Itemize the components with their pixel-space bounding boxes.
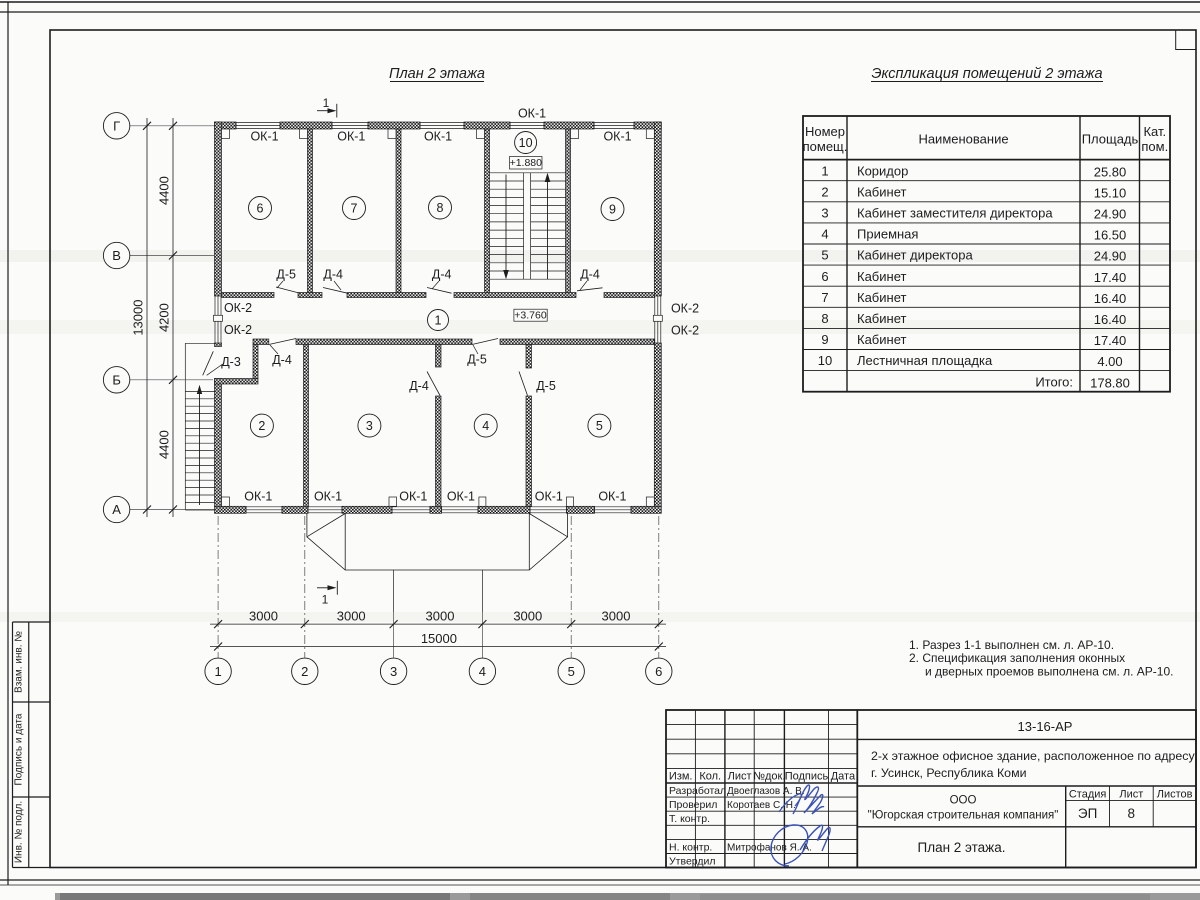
svg-text:15.10: 15.10: [1094, 185, 1127, 200]
svg-text:Разработал: Разработал: [669, 785, 726, 797]
svg-text:Коридор: Коридор: [857, 163, 908, 178]
svg-text:1: 1: [214, 664, 221, 679]
svg-text:Взам. инв. №: Взам. инв. №: [14, 631, 25, 693]
svg-text:1. Разрез 1-1 выполнен см. л.: 1. Разрез 1-1 выполнен см. л. АР-10.: [909, 638, 1114, 652]
svg-text:24.90: 24.90: [1094, 249, 1127, 264]
svg-text:13000: 13000: [131, 300, 146, 336]
svg-text:Д-4: Д-4: [323, 268, 343, 282]
svg-text:17.40: 17.40: [1094, 333, 1127, 348]
svg-text:ОК-1: ОК-1: [244, 490, 272, 504]
svg-text:16.50: 16.50: [1094, 228, 1127, 243]
svg-text:9: 9: [609, 203, 616, 217]
svg-text:ОК-1: ОК-1: [518, 107, 546, 121]
svg-text:7: 7: [351, 202, 358, 216]
svg-text:5: 5: [568, 664, 575, 679]
svg-text:6: 6: [257, 202, 264, 216]
svg-text:Д-4: Д-4: [432, 268, 452, 282]
svg-text:ОК-1: ОК-1: [535, 490, 563, 504]
svg-text:Г: Г: [113, 119, 120, 134]
svg-text:Лист: Лист: [1119, 789, 1143, 801]
svg-text:4: 4: [479, 664, 486, 679]
svg-text:8: 8: [437, 201, 444, 215]
svg-text:+1.880: +1.880: [510, 157, 543, 169]
svg-text:3000: 3000: [602, 609, 631, 624]
svg-text:3: 3: [390, 664, 397, 679]
svg-text:Кабинет: Кабинет: [857, 332, 906, 347]
svg-text:3: 3: [366, 419, 373, 433]
svg-text:6: 6: [821, 269, 828, 284]
svg-text:Кат.: Кат.: [1143, 124, 1166, 139]
svg-text:Лист: Лист: [728, 771, 752, 783]
svg-text:Кабинет: Кабинет: [857, 290, 906, 305]
svg-text:ОК-1: ОК-1: [314, 490, 342, 504]
svg-text:+3.760: +3.760: [514, 309, 547, 321]
svg-text:16.40: 16.40: [1094, 312, 1127, 327]
svg-text:В: В: [112, 248, 121, 263]
svg-text:3000: 3000: [337, 609, 366, 624]
svg-text:Инв. № подл.: Инв. № подл.: [14, 801, 25, 863]
svg-text:8: 8: [821, 311, 828, 326]
svg-text:3: 3: [821, 206, 828, 221]
svg-text:3000: 3000: [249, 609, 278, 624]
svg-text:Д-5: Д-5: [536, 379, 556, 393]
svg-text:2: 2: [258, 419, 265, 433]
svg-text:Подпись и дата: Подпись и дата: [14, 713, 25, 785]
svg-text:ООО: ООО: [950, 795, 977, 807]
svg-text:15000: 15000: [421, 631, 457, 646]
svg-text:5: 5: [821, 248, 828, 263]
svg-text:2: 2: [301, 664, 308, 679]
svg-text:4200: 4200: [157, 303, 172, 332]
svg-text:ОК-1: ОК-1: [447, 490, 475, 504]
svg-text:Кабинет: Кабинет: [857, 184, 906, 199]
svg-text:ОК-1: ОК-1: [250, 130, 278, 144]
svg-text:г. Усинск, Республика Коми: г. Усинск, Республика Коми: [871, 766, 1027, 780]
svg-text:3000: 3000: [513, 609, 542, 624]
svg-text:Проверил: Проверил: [669, 799, 717, 811]
svg-text:7: 7: [821, 290, 828, 305]
svg-text:8: 8: [1128, 806, 1136, 821]
svg-text:4: 4: [821, 227, 828, 242]
svg-text:Лестничная площадка: Лестничная площадка: [857, 353, 993, 368]
svg-text:ОК-1: ОК-1: [337, 130, 365, 144]
svg-text:10: 10: [818, 353, 832, 368]
svg-text:пом.: пом.: [1141, 139, 1168, 154]
svg-text:24.90: 24.90: [1094, 207, 1127, 222]
svg-text:Д-4: Д-4: [580, 268, 600, 282]
svg-text:178.80: 178.80: [1090, 375, 1130, 390]
svg-text:1: 1: [322, 593, 329, 607]
svg-text:ОК-1: ОК-1: [598, 490, 626, 504]
svg-text:13-16-АР: 13-16-АР: [1018, 719, 1073, 734]
svg-text:17.40: 17.40: [1094, 270, 1127, 285]
svg-text:Кол.: Кол.: [699, 771, 721, 783]
svg-text:Т. контр.: Т. контр.: [669, 813, 710, 825]
svg-text:ЭП: ЭП: [1078, 806, 1097, 821]
svg-text:25.80: 25.80: [1094, 164, 1127, 179]
svg-text:А: А: [112, 502, 121, 517]
svg-text:Приемная: Приемная: [857, 227, 918, 242]
svg-text:Н. контр.: Н. контр.: [669, 842, 712, 854]
svg-text:Кабинет: Кабинет: [857, 269, 906, 284]
svg-text:2. Спецификация заполнения око: 2. Спецификация заполнения оконных: [909, 651, 1125, 665]
svg-text:ОК-2: ОК-2: [671, 302, 699, 316]
svg-text:Дата: Дата: [831, 771, 856, 783]
svg-text:2-х этажное офисное здание, ра: 2-х этажное офисное здание, расположенно…: [871, 749, 1198, 763]
svg-text:Номер: Номер: [805, 124, 845, 139]
svg-text:2: 2: [821, 184, 828, 199]
svg-text:План 2 этажа: План 2 этажа: [389, 66, 485, 82]
svg-text:ОК-1: ОК-1: [603, 130, 631, 144]
svg-text:Изм.: Изм.: [669, 771, 693, 783]
svg-text:Экспликация помещений 2 этажа: Экспликация помещений 2 этажа: [871, 66, 1102, 82]
svg-text:Подпись: Подпись: [785, 771, 829, 783]
svg-text:помещ.: помещ.: [803, 139, 848, 154]
svg-text:4: 4: [482, 419, 489, 433]
svg-text:ОК-1: ОК-1: [424, 130, 452, 144]
svg-text:Утвердил: Утвердил: [669, 856, 716, 868]
svg-text:ОК-1: ОК-1: [399, 490, 427, 504]
svg-text:Двоеглазов А. В.: Двоеглазов А. В.: [727, 786, 805, 797]
svg-text:Стадия: Стадия: [1069, 789, 1107, 801]
svg-text:"Югорская строительная компани: "Югорская строительная компания": [868, 810, 1059, 822]
svg-text:Д-5: Д-5: [467, 353, 487, 367]
svg-text:Площадь: Площадь: [1082, 132, 1139, 147]
svg-text:3000: 3000: [426, 609, 455, 624]
svg-text:№док.: №док.: [753, 771, 785, 783]
svg-text:Д-5: Д-5: [276, 268, 296, 282]
svg-text:4400: 4400: [157, 430, 172, 459]
svg-text:1: 1: [323, 96, 330, 110]
svg-text:1: 1: [821, 163, 828, 178]
svg-text:1: 1: [435, 314, 442, 328]
svg-text:Кабинет директора: Кабинет директора: [857, 248, 973, 263]
svg-text:4.00: 4.00: [1097, 354, 1122, 369]
svg-text:Д-4: Д-4: [409, 379, 429, 393]
svg-text:9: 9: [821, 332, 828, 347]
svg-text:ОК-2: ОК-2: [671, 324, 699, 338]
svg-text:Кабинет: Кабинет: [857, 311, 906, 326]
svg-text:Митрофанов Я. А.: Митрофанов Я. А.: [727, 842, 812, 854]
svg-text:4400: 4400: [157, 176, 172, 205]
svg-text:Кабинет заместителя директора: Кабинет заместителя директора: [857, 206, 1053, 221]
svg-text:ОК-2: ОК-2: [224, 323, 252, 337]
svg-text:Б: Б: [112, 373, 121, 388]
svg-text:ОК-2: ОК-2: [224, 301, 252, 315]
svg-text:План 2 этажа.: План 2 этажа.: [918, 840, 1006, 855]
svg-text:Листов: Листов: [1157, 789, 1193, 801]
svg-text:Коротаев С. Н.: Коротаев С. Н.: [727, 800, 796, 811]
svg-text:10: 10: [519, 136, 533, 150]
svg-text:Д-3: Д-3: [221, 355, 241, 369]
svg-text:Д-4: Д-4: [272, 353, 292, 367]
svg-text:Наименование: Наименование: [918, 132, 1008, 147]
svg-text:6: 6: [655, 664, 662, 679]
svg-text:Итого:: Итого:: [1035, 374, 1073, 389]
svg-text:и дверных проемов выполнена см: и дверных проемов выполнена см. л. АР-10…: [925, 665, 1173, 679]
svg-text:16.40: 16.40: [1094, 291, 1127, 306]
svg-text:5: 5: [596, 419, 603, 433]
